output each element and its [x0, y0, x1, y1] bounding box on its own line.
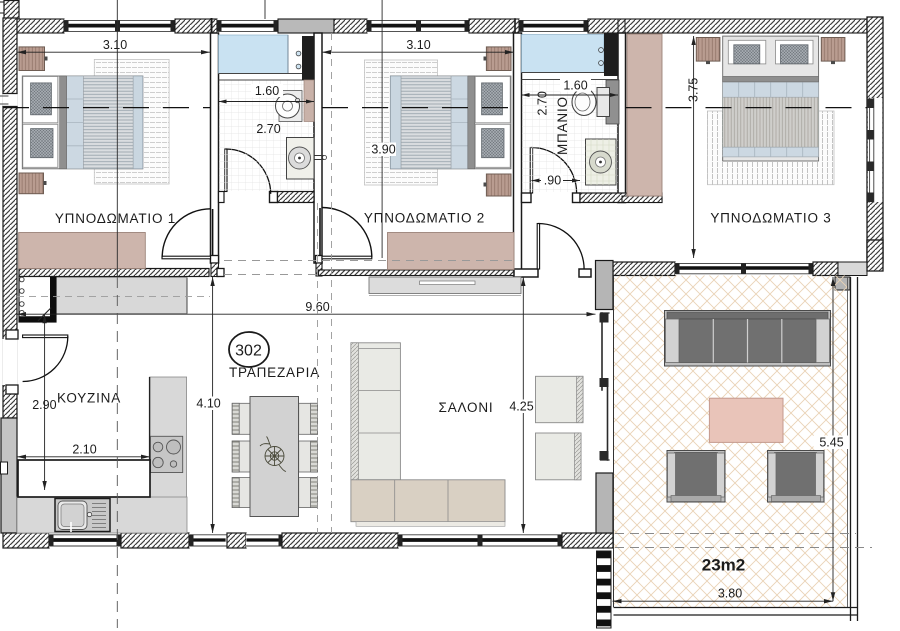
- svg-text:4.10: 4.10: [196, 397, 220, 411]
- svg-text:3.10: 3.10: [406, 38, 430, 52]
- svg-text:4.25: 4.25: [509, 400, 533, 414]
- svg-text:1.60: 1.60: [563, 79, 587, 93]
- svg-text:2.70: 2.70: [536, 91, 550, 115]
- svg-text:2.70: 2.70: [256, 122, 280, 136]
- svg-text:3.80: 3.80: [718, 587, 742, 601]
- svg-text:ΜΠΑΝΙΟ: ΜΠΑΝΙΟ: [555, 96, 570, 155]
- svg-text:.90: .90: [544, 174, 561, 188]
- svg-text:ΚΟΥΖΙΝΑ: ΚΟΥΖΙΝΑ: [57, 391, 121, 406]
- svg-text:5.45: 5.45: [819, 436, 843, 450]
- svg-text:ΤΡΑΠΕΖΑΡΙΑ: ΤΡΑΠΕΖΑΡΙΑ: [229, 365, 320, 380]
- svg-text:ΥΠΝΟΔΩΜΑΤΙΟ 3: ΥΠΝΟΔΩΜΑΤΙΟ 3: [710, 211, 831, 226]
- svg-text:2.90: 2.90: [32, 398, 56, 412]
- svg-text:23m2: 23m2: [702, 556, 745, 575]
- svg-text:2.10: 2.10: [72, 442, 96, 456]
- svg-text:302: 302: [235, 343, 262, 360]
- svg-text:1.60: 1.60: [255, 84, 279, 98]
- svg-text:ΥΠΝΟΔΩΜΑΤΙΟ 1: ΥΠΝΟΔΩΜΑΤΙΟ 1: [55, 211, 176, 226]
- svg-text:ΣΑΛΟΝΙ: ΣΑΛΟΝΙ: [439, 400, 494, 415]
- svg-text:3.90: 3.90: [371, 143, 395, 157]
- svg-text:3.10: 3.10: [103, 38, 127, 52]
- svg-text:3.75: 3.75: [687, 78, 701, 102]
